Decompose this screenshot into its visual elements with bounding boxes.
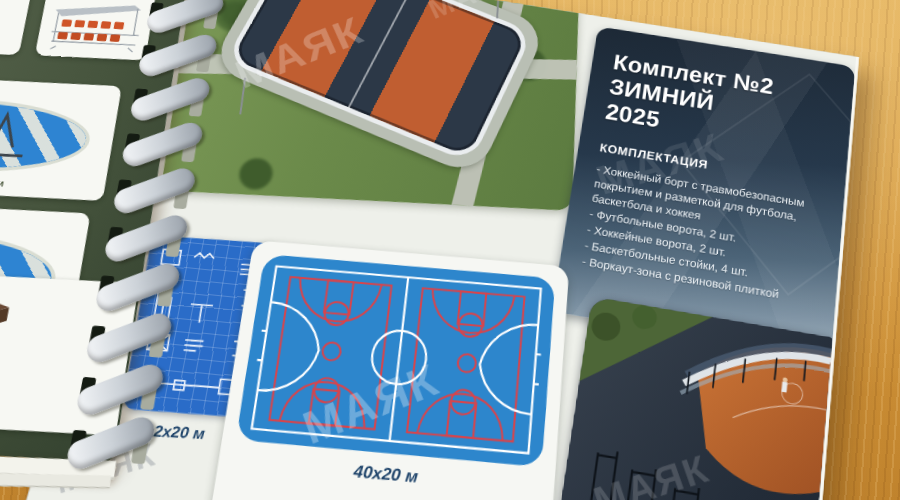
court-diagram xyxy=(236,253,556,467)
spiral-coil xyxy=(107,173,204,210)
rubber-surface xyxy=(0,94,96,177)
spiral-coil xyxy=(70,370,173,412)
bench-card: Лавка с упорами xyxy=(0,73,122,201)
canopy-bleacher-icon xyxy=(43,0,149,53)
spiral-coil xyxy=(89,269,189,309)
spiral-coil xyxy=(124,83,218,118)
spiral-coil xyxy=(60,423,164,466)
spiral-coil xyxy=(132,39,225,74)
hockey-rink xyxy=(209,0,548,178)
spiral-coil xyxy=(98,221,196,259)
catalog-booklet: МАЯК МАЯК Комплект №2 ЗИМНИЙ 2025 КОМПЛЕ… xyxy=(0,0,853,500)
rubber-tile-icon xyxy=(0,274,34,357)
bleacher-icon xyxy=(0,0,21,48)
spiral-coil xyxy=(79,319,180,360)
bench-equipment-icon xyxy=(0,98,92,173)
spiral-coil xyxy=(140,0,231,31)
bench-card-label: Лавка с упорами xyxy=(0,173,5,188)
light-pole-icon xyxy=(239,78,246,115)
equipment-list: - Хоккейный борт с травмобезопасным покр… xyxy=(581,162,824,309)
court-card: 40x20 м МАЯК xyxy=(208,240,569,500)
spiral-coil xyxy=(115,128,210,164)
desk-background: МАЯК МАЯК Комплект №2 ЗИМНИЙ 2025 КОМПЛЕ… xyxy=(0,0,900,500)
